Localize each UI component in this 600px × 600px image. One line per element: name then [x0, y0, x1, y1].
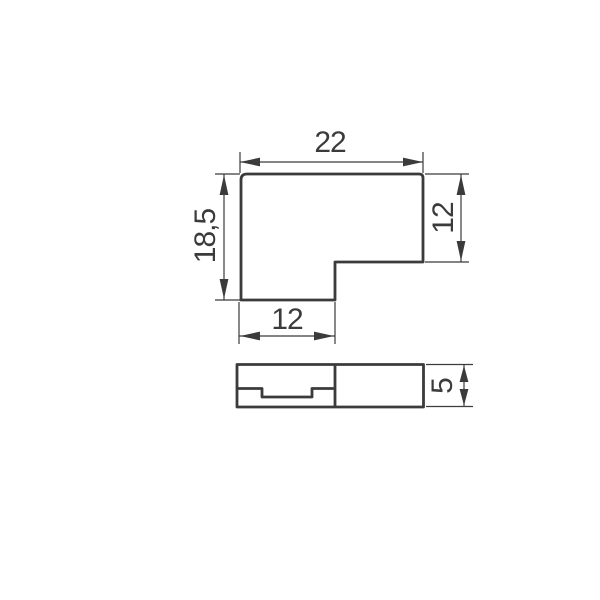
top-view-outline — [241, 174, 423, 300]
arrowhead-left — [240, 332, 260, 341]
drawing-canvas: 22 18,5 12 12 — [0, 0, 600, 600]
arrowhead-right — [314, 332, 334, 341]
dimension-label-bottom-width: 12 — [271, 303, 303, 336]
side-view — [237, 365, 424, 408]
side-view-outline — [237, 365, 424, 408]
arrowhead-right — [403, 158, 423, 167]
arrowhead-top — [220, 175, 229, 195]
dimension-top-width: 22 — [240, 126, 423, 173]
dimension-side-height: 5 — [426, 365, 473, 407]
arrowhead-top — [460, 366, 469, 383]
technical-drawing: 22 18,5 12 12 — [0, 0, 600, 600]
dimension-bottom-width: 12 — [239, 302, 335, 344]
arrowhead-bottom — [220, 279, 229, 299]
arrowhead-bottom — [460, 389, 469, 406]
dimension-label-left-height: 18,5 — [189, 208, 222, 263]
dimension-label-right-height: 12 — [427, 202, 460, 234]
dimension-left-height: 18,5 — [189, 174, 240, 300]
arrowhead-bottom — [457, 241, 466, 261]
dimension-label-side-height: 5 — [426, 378, 459, 394]
top-view — [241, 174, 423, 300]
arrowhead-top — [457, 175, 466, 195]
dimension-right-height: 12 — [425, 174, 469, 262]
dimension-label-top-width: 22 — [314, 126, 346, 159]
arrowhead-left — [240, 158, 260, 167]
